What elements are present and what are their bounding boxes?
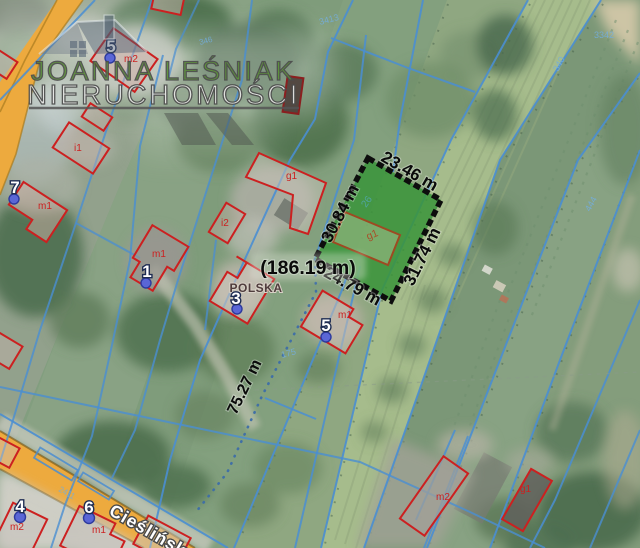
svg-text:3: 3: [231, 289, 240, 308]
svg-text:3342: 3342: [594, 30, 614, 40]
svg-text:i2: i2: [221, 218, 229, 229]
svg-text:5: 5: [321, 316, 330, 335]
svg-text:6: 6: [84, 498, 93, 517]
svg-text:g1: g1: [286, 171, 298, 182]
svg-text:g1: g1: [520, 484, 532, 495]
svg-text:(186.19 m): (186.19 m): [260, 257, 355, 279]
svg-text:i1: i1: [74, 143, 82, 154]
svg-text:m1: m1: [338, 310, 352, 321]
svg-text:NIERUCHOMOŚCI: NIERUCHOMOŚCI: [27, 78, 300, 110]
svg-text:m1: m1: [92, 525, 106, 536]
svg-text:m2: m2: [436, 492, 450, 503]
svg-text:m1: m1: [152, 249, 166, 260]
svg-text:4: 4: [15, 497, 25, 516]
svg-text:1: 1: [142, 262, 151, 281]
svg-text:7: 7: [10, 178, 19, 197]
svg-text:m1: m1: [38, 201, 52, 212]
svg-text:m2: m2: [10, 522, 24, 533]
